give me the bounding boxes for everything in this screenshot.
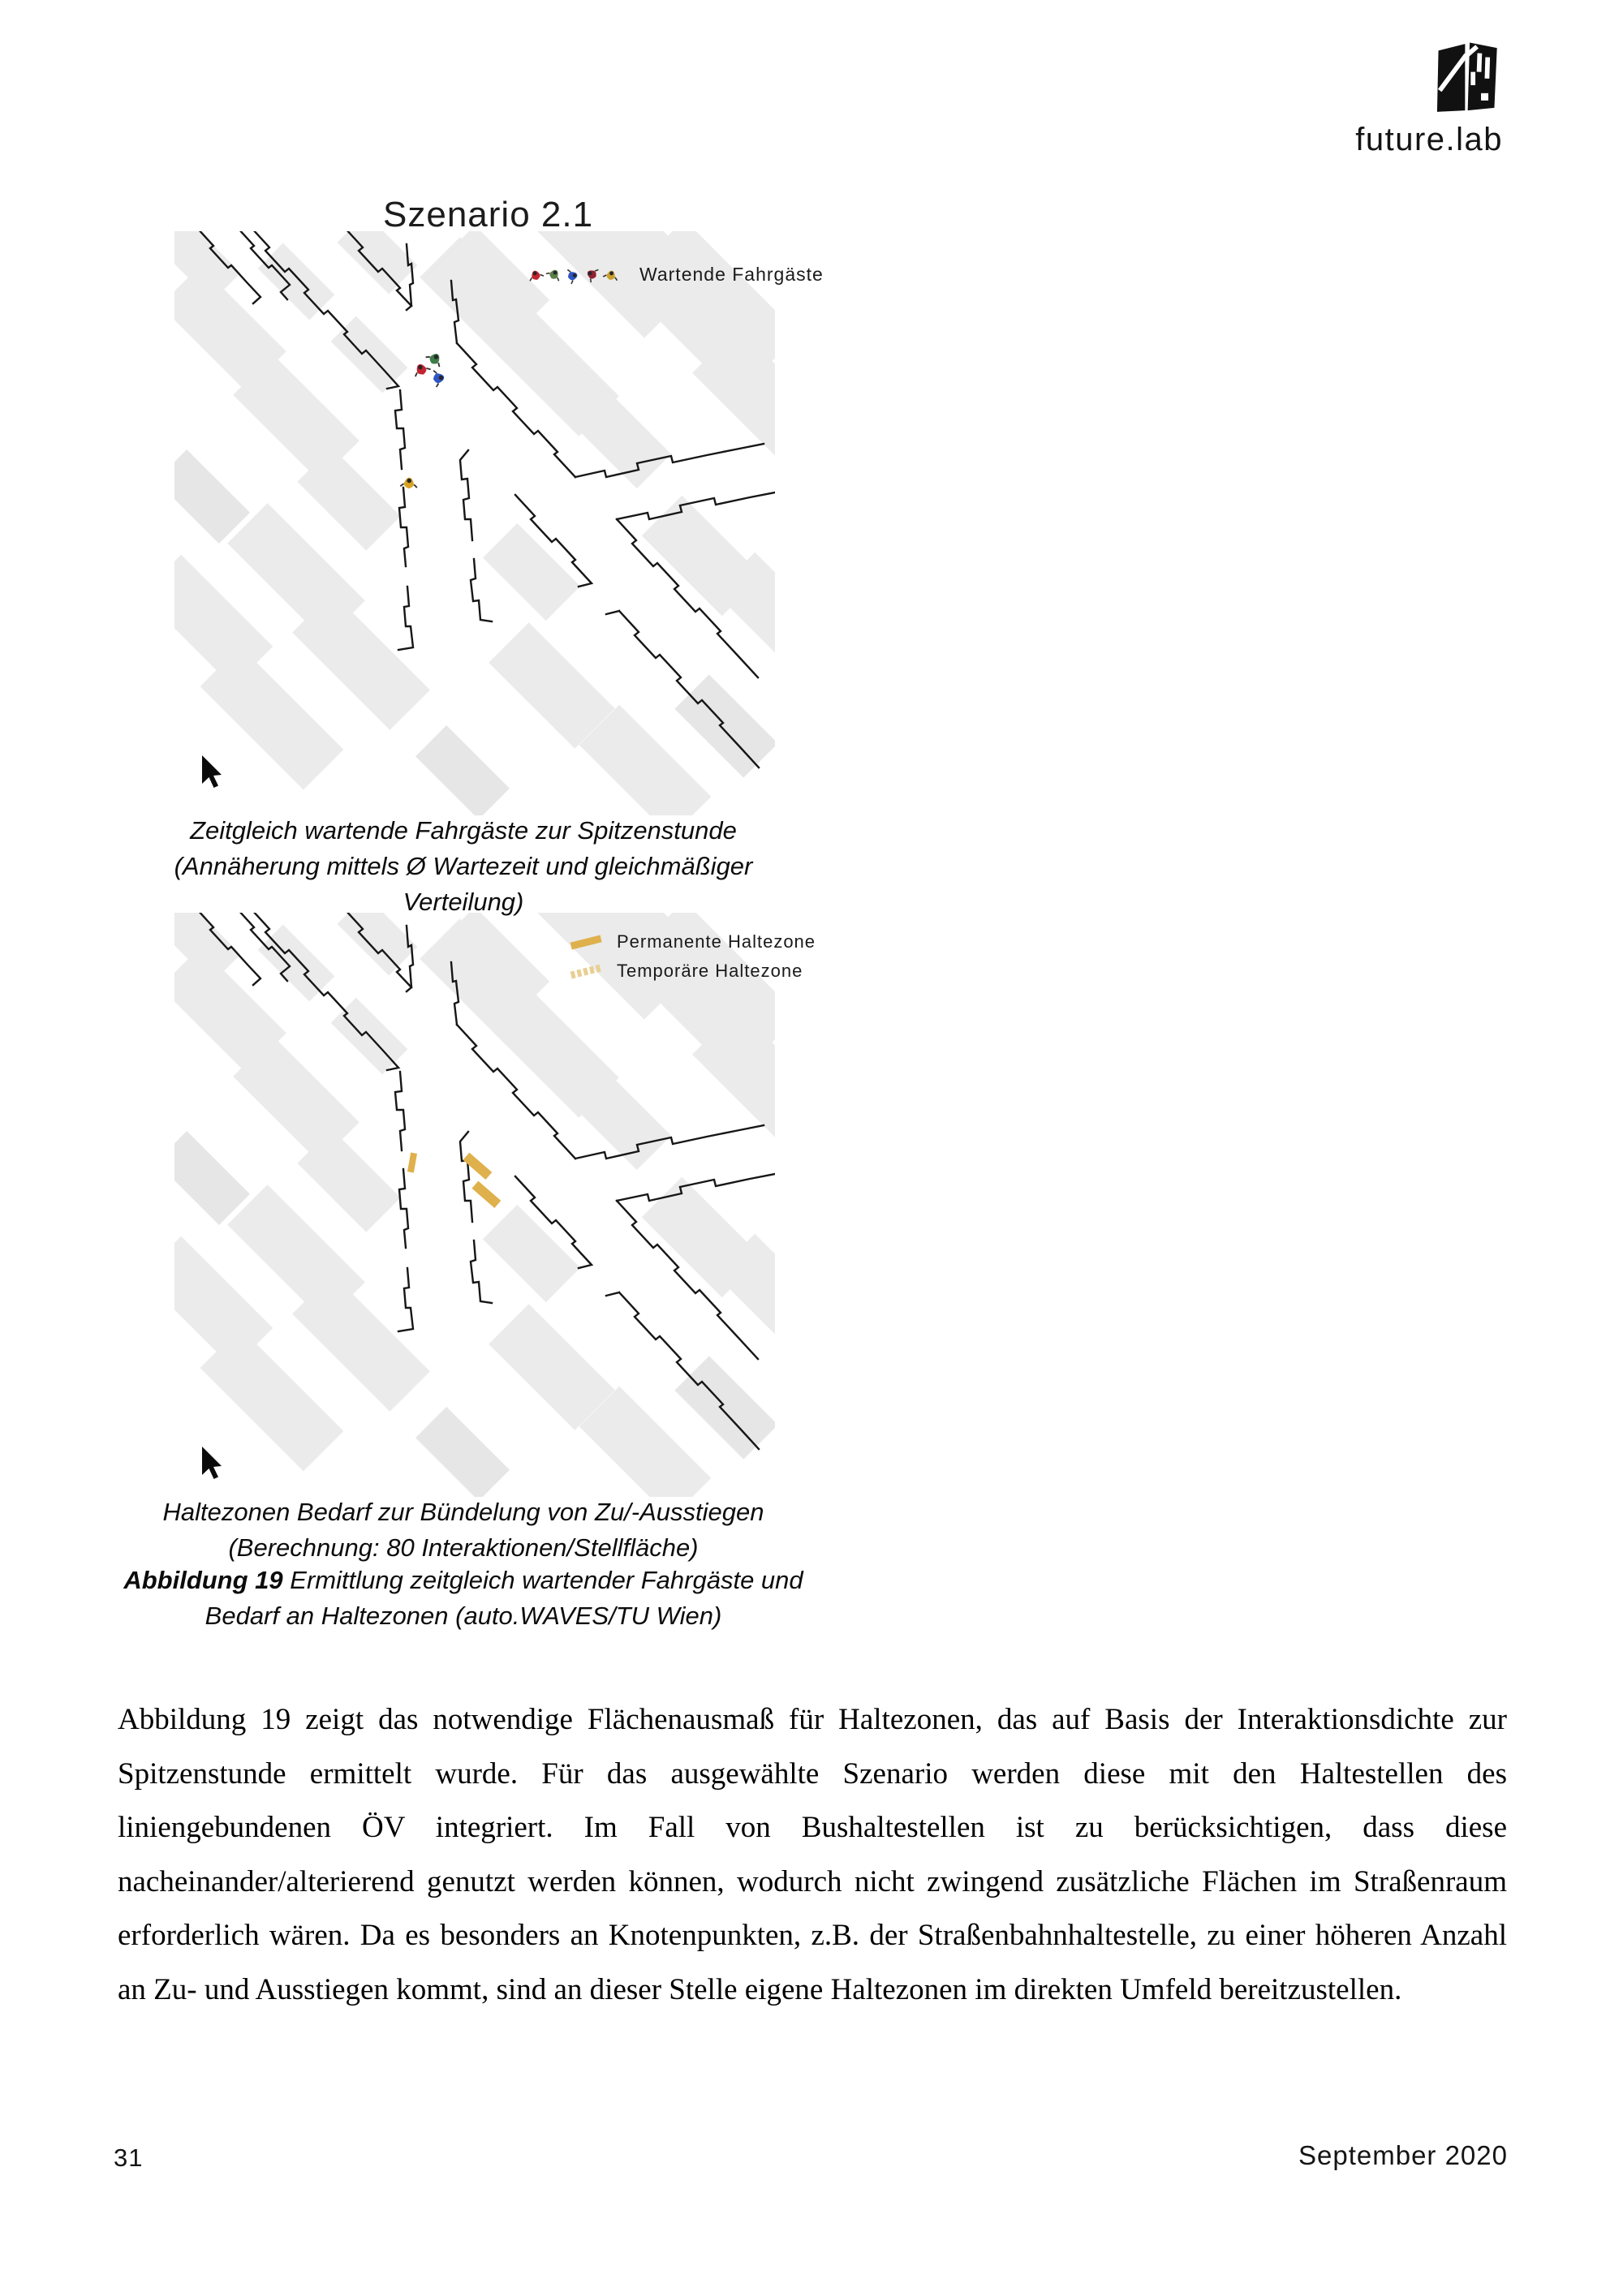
brand-name: future.lab xyxy=(1355,122,1503,158)
figure-caption: Abbildung 19 Ermittlung zeitgleich warte… xyxy=(114,1563,813,1634)
map2-canvas xyxy=(174,913,775,1497)
waiting-passengers-legend-icons xyxy=(527,264,623,286)
cursor-icon xyxy=(202,755,222,788)
map2-caption-line2: (Berechnung: 80 Interaktionen/Stellfläch… xyxy=(114,1530,813,1566)
map2-legend-label-temporary: Temporäre Haltezone xyxy=(617,961,803,982)
body-paragraph: Abbildung 19 zeigt das notwendige Fläche… xyxy=(118,1693,1507,2017)
cursor-icon xyxy=(202,1447,222,1479)
map1-legend-label: Wartende Fahrgäste xyxy=(639,264,824,286)
figure-caption-label: Abbildung 19 xyxy=(123,1566,282,1594)
permanent-zone-bar xyxy=(471,1181,501,1208)
map-halting-zones xyxy=(174,913,775,1497)
figure-caption-line2: Bedarf an Haltezonen (auto.WAVES/TU Wien… xyxy=(114,1598,813,1634)
basemap-layer xyxy=(174,231,775,815)
halting-zones xyxy=(407,1152,501,1208)
figure-caption-text1: Ermittlung zeitgleich wartender Fahrgäst… xyxy=(283,1566,803,1594)
footer-date: September 2020 xyxy=(1298,2140,1508,2171)
legend-passenger-icon xyxy=(584,265,600,282)
waiting-passengers-icons xyxy=(400,350,446,489)
basemap-layer xyxy=(174,913,775,1497)
map2-caption: Haltezonen Bedarf zur Bündelung von Zu/-… xyxy=(114,1494,813,1566)
futurelab-logo-icon xyxy=(1433,41,1500,115)
legend-passenger-icon xyxy=(566,267,579,283)
temporary-zone-swatch xyxy=(568,962,604,980)
map1-legend: Wartende Fahrgäste xyxy=(527,264,824,286)
page-number: 31 xyxy=(114,2143,143,2173)
map1-caption: Zeitgleich wartende Fahrgäste zur Spitze… xyxy=(114,813,813,920)
legend-passenger-icon xyxy=(603,269,619,282)
map2-legend-row-permanent: Permanente Haltezone xyxy=(568,931,816,952)
passenger-icon xyxy=(424,350,445,368)
passenger-icon xyxy=(411,361,431,378)
map1-caption-line1: Zeitgleich wartende Fahrgäste zur Spitze… xyxy=(114,813,813,849)
brand: future.lab xyxy=(1355,41,1503,158)
permanent-zone-bar xyxy=(407,1152,417,1172)
map2-caption-line1: Haltezonen Bedarf zur Bündelung von Zu/-… xyxy=(114,1494,813,1530)
map2-legend-label-permanent: Permanente Haltezone xyxy=(617,931,816,952)
map2-legend-row-temporary: Temporäre Haltezone xyxy=(568,961,816,982)
permanent-zone-swatch xyxy=(568,933,604,951)
passenger-icon xyxy=(432,369,446,388)
map1-caption-line2: (Annäherung mittels Ø Wartezeit und glei… xyxy=(114,849,813,920)
legend-passenger-icon xyxy=(527,268,545,282)
scenario-title: Szenario 2.1 xyxy=(383,195,593,235)
legend-passenger-icon xyxy=(545,266,562,282)
figure-caption-line1: Abbildung 19 Ermittlung zeitgleich warte… xyxy=(114,1563,813,1598)
map-waiting-passengers xyxy=(174,231,775,815)
map1-canvas xyxy=(174,231,775,815)
document-page: future.lab Szenario 2.1 Wartende Fahrgäs… xyxy=(0,0,1623,2296)
map2-legend: Permanente Haltezone Temporäre Haltezone xyxy=(568,931,816,990)
